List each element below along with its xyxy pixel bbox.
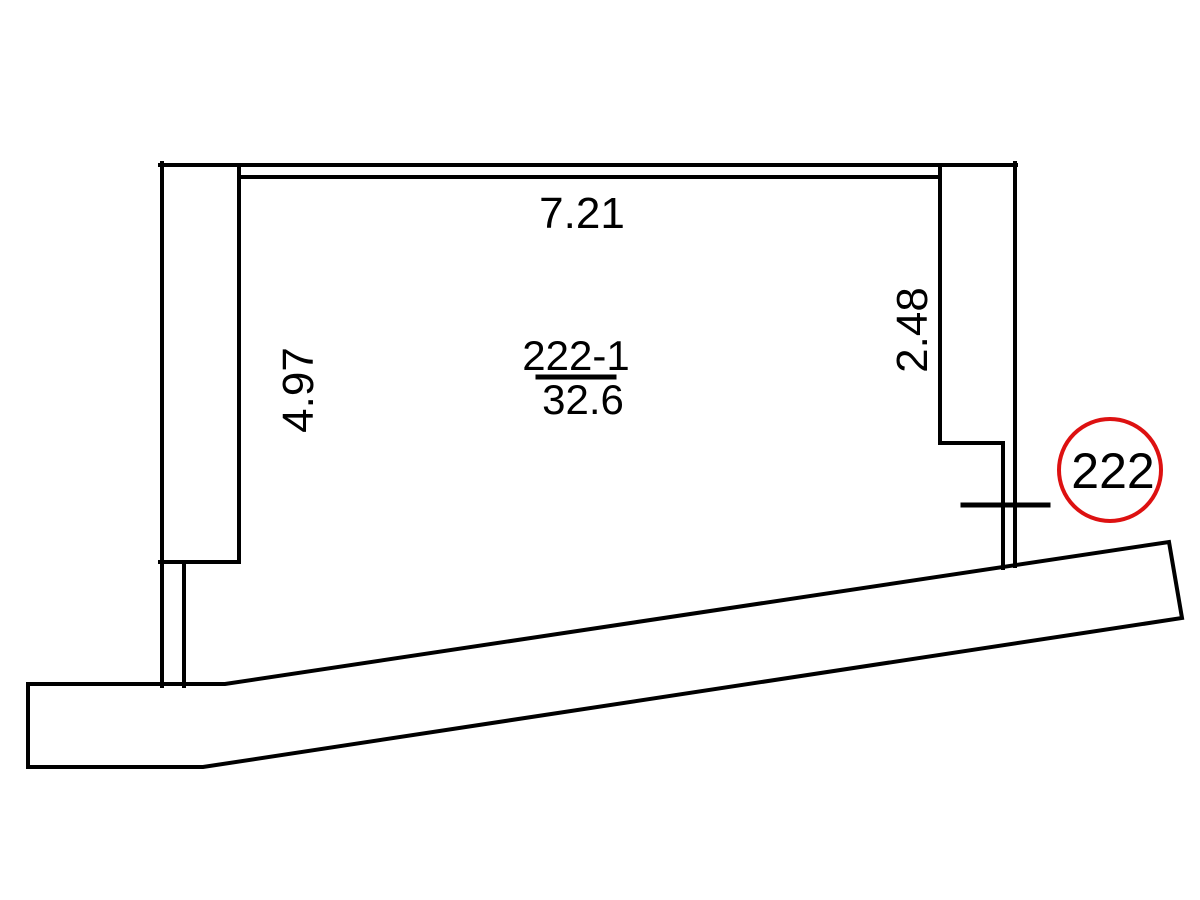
lower-angled-wall [28, 542, 1182, 767]
right-height-dimension: 2.48 [888, 287, 937, 373]
left-height-dimension: 4.97 [274, 347, 323, 433]
floor-plan-canvas: 7.21 4.97 2.48 222-1 32.6 222 [0, 0, 1200, 900]
unit-badge: 222 [1059, 419, 1161, 521]
wall-lines [28, 163, 1182, 767]
top-width-dimension: 7.21 [539, 189, 625, 238]
room-area: 32.6 [542, 376, 624, 423]
unit-badge-number: 222 [1071, 443, 1154, 499]
room-label: 222-1 32.6 [522, 332, 629, 423]
floor-plan: 7.21 4.97 2.48 222-1 32.6 222 [0, 0, 1200, 900]
room-number: 222-1 [522, 332, 629, 379]
